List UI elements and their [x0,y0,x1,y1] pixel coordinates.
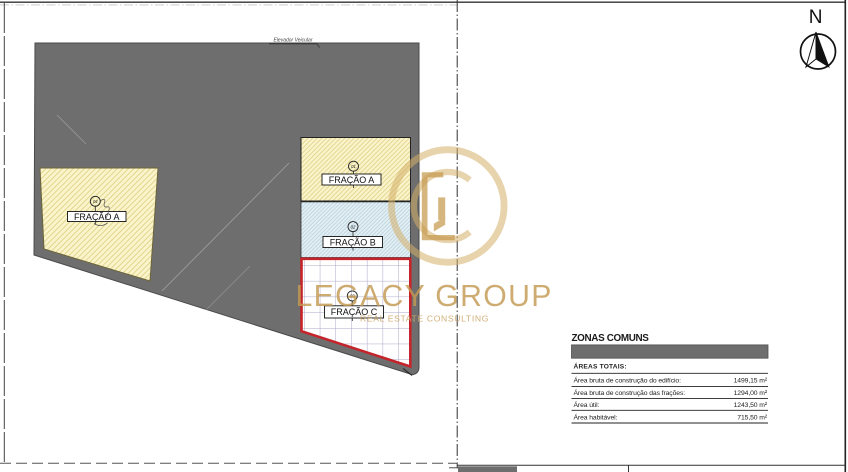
svg-text:04: 04 [93,199,98,204]
svg-text:02: 02 [351,224,356,229]
svg-text:1499,15 m²: 1499,15 m² [734,378,768,385]
svg-text:1243,50 m²: 1243,50 m² [734,402,768,409]
svg-text:FRAÇÃO A: FRAÇÃO A [329,175,375,185]
svg-text:ZONAS COMUNS: ZONAS COMUNS [572,333,650,344]
svg-text:Elevador Veicular: Elevador Veicular [273,38,312,44]
svg-text:FRAÇÃO A: FRAÇÃO A [74,212,120,222]
svg-text:01: 01 [351,164,356,169]
svg-text:715,50 m²: 715,50 m² [737,415,768,422]
svg-text:N: N [809,7,823,28]
svg-text:Área útil:: Área útil: [574,400,600,409]
svg-text:ÁREAS TOTAIS:: ÁREAS TOTAIS: [574,362,627,371]
svg-text:Área bruta de construção do ed: Área bruta de construção do edifício: [574,376,682,385]
svg-text:REAL ESTATE CONSULTING: REAL ESTATE CONSULTING [360,314,489,324]
svg-text:FRAÇÃO B: FRAÇÃO B [330,237,376,247]
svg-text:Área bruta de construção das f: Área bruta de construção das frações: [574,388,686,397]
svg-text:LEGACY GROUP: LEGACY GROUP [296,280,553,313]
svg-text:Área habitável:: Área habitável: [574,413,618,422]
svg-text:1294,00 m²: 1294,00 m² [734,390,768,397]
